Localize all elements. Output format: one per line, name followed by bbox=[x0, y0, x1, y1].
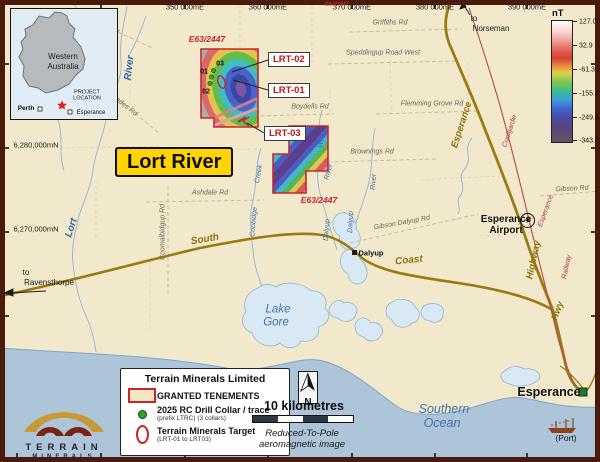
river-label-dalyup-river: River bbox=[370, 174, 378, 191]
colorbar-gradient bbox=[551, 20, 573, 143]
dest-to-ravensthorpe-1: to bbox=[23, 269, 30, 277]
road-label-coomalbidgup: Coomalbidgup Rd bbox=[160, 204, 167, 260]
river-label-dalyup-1: Dalyup bbox=[347, 211, 355, 233]
legend-title: Terrain Minerals Limited bbox=[127, 373, 283, 385]
target-label-lrt-01: LRT-01 bbox=[268, 83, 310, 98]
colorbar-tick-3: -155.4 bbox=[579, 91, 599, 98]
dest-to-ravensthorpe-2: Ravensthorpe bbox=[24, 279, 74, 287]
target-label-lrt-02: LRT-02 bbox=[268, 52, 310, 67]
dalyup-town-marker bbox=[352, 250, 357, 255]
colorbar-tick-1: 32.9 bbox=[579, 43, 593, 50]
dest-to-norseman-2: Norseman bbox=[473, 25, 510, 33]
colorbar-tick-2: -61.3 bbox=[579, 67, 595, 74]
inset-location-map: Western Australia PROJECT LOCATION Perth… bbox=[10, 8, 118, 120]
road-label-boydells: Boydells Rd bbox=[291, 104, 328, 111]
road-label-speddingup: Speddingup Road West bbox=[346, 50, 420, 57]
ocean-label-1: Southern bbox=[419, 403, 470, 416]
airport-label-2: Airport bbox=[489, 226, 522, 236]
collar-label-03: 03 bbox=[216, 61, 224, 68]
magnetics-colorbar: nT 127.0 32.9 -61.3 -155.4 -249.6 -343.7 bbox=[546, 8, 598, 156]
north-arrow-glyph bbox=[299, 372, 317, 392]
easting-350000: 350 000mE bbox=[166, 3, 204, 11]
collar-label-01: 01 bbox=[200, 69, 208, 76]
inset-region-2: Australia bbox=[47, 63, 78, 71]
port-label: (Port) bbox=[555, 434, 576, 443]
target-ellipse-icon bbox=[127, 425, 157, 444]
town-label-dalyup: Dalyup bbox=[358, 249, 383, 257]
tenement-id-south: E63/2447 bbox=[301, 196, 337, 205]
easting-390000: 390 000mE bbox=[508, 3, 546, 11]
legend-target-sub: (LRT-01 to LRT03) bbox=[157, 436, 255, 444]
caption-line-1: Reduced-To-Pole bbox=[242, 428, 362, 439]
map-canvas: 350 000mE 360 000mE 370 000mE 380 000mE … bbox=[0, 0, 600, 462]
road-label-brownings: Brownings Rd bbox=[350, 149, 394, 156]
northing-6280000: 6,280,000mN bbox=[13, 141, 58, 149]
easting-360000: 360 000mE bbox=[249, 3, 287, 11]
inset-project-2: LOCATION bbox=[73, 96, 101, 102]
inset-esperance-label: Esperance bbox=[77, 110, 106, 116]
project-location-star bbox=[57, 101, 67, 110]
colorbar-tick-5: -343.7 bbox=[579, 138, 599, 145]
logo-text-minerals: MINERALS bbox=[12, 453, 116, 461]
ocean-label-2: Ocean bbox=[424, 417, 461, 430]
lake-gore-label-2: Gore bbox=[263, 317, 289, 329]
drill-collar-icon bbox=[127, 410, 157, 419]
logo-arches-icon bbox=[12, 398, 116, 438]
scalebar-label: 10 kilometres bbox=[252, 399, 356, 413]
colorbar-tick-4: -249.6 bbox=[579, 115, 599, 122]
colorbar-tick-0: 127.0 bbox=[579, 19, 597, 26]
map-caption: Reduced-To-Pole aeromagnetic image bbox=[242, 428, 362, 450]
road-label-flemming-grove: Flemming Grove Rd bbox=[401, 101, 464, 108]
tenement-id-top: E63/2447 bbox=[325, 2, 349, 8]
dest-to-norseman-1: to bbox=[471, 15, 478, 23]
logo-text-terrain: TERRAIN bbox=[12, 443, 116, 453]
scalebar bbox=[252, 415, 354, 423]
inset-region-1: Western bbox=[48, 53, 78, 61]
tenement-swatch bbox=[127, 388, 157, 403]
legend-target-label: Terrain Minerals Target bbox=[157, 426, 255, 436]
company-logo: TERRAIN MINERALS bbox=[12, 398, 116, 458]
town-label-esperance: Esperance bbox=[517, 386, 580, 399]
northing-6270000: 6,270,000mN bbox=[13, 225, 58, 233]
colorbar-unit: nT bbox=[552, 8, 564, 19]
target-label-lrt-03: LRT-03 bbox=[264, 126, 306, 141]
tenement-id-north: E63/2447 bbox=[189, 35, 225, 44]
easting-380000: 380 000mE bbox=[416, 3, 454, 11]
project-title: Lort River bbox=[115, 147, 233, 177]
legend-tenements-label: GRANTED TENEMENTS bbox=[157, 391, 260, 401]
inset-perth-label: Perth bbox=[18, 106, 35, 113]
road-label-ashdale: Ashdale Rd bbox=[192, 190, 228, 197]
collar-label-02: 02 bbox=[202, 89, 210, 96]
lake-gore-label-1: Lake bbox=[266, 304, 291, 316]
caption-line-2: aeromagnetic image bbox=[242, 439, 362, 450]
airport-icon: ✈ bbox=[520, 213, 535, 228]
road-label-griffiths-ne: Griffiths Rd bbox=[372, 20, 407, 27]
